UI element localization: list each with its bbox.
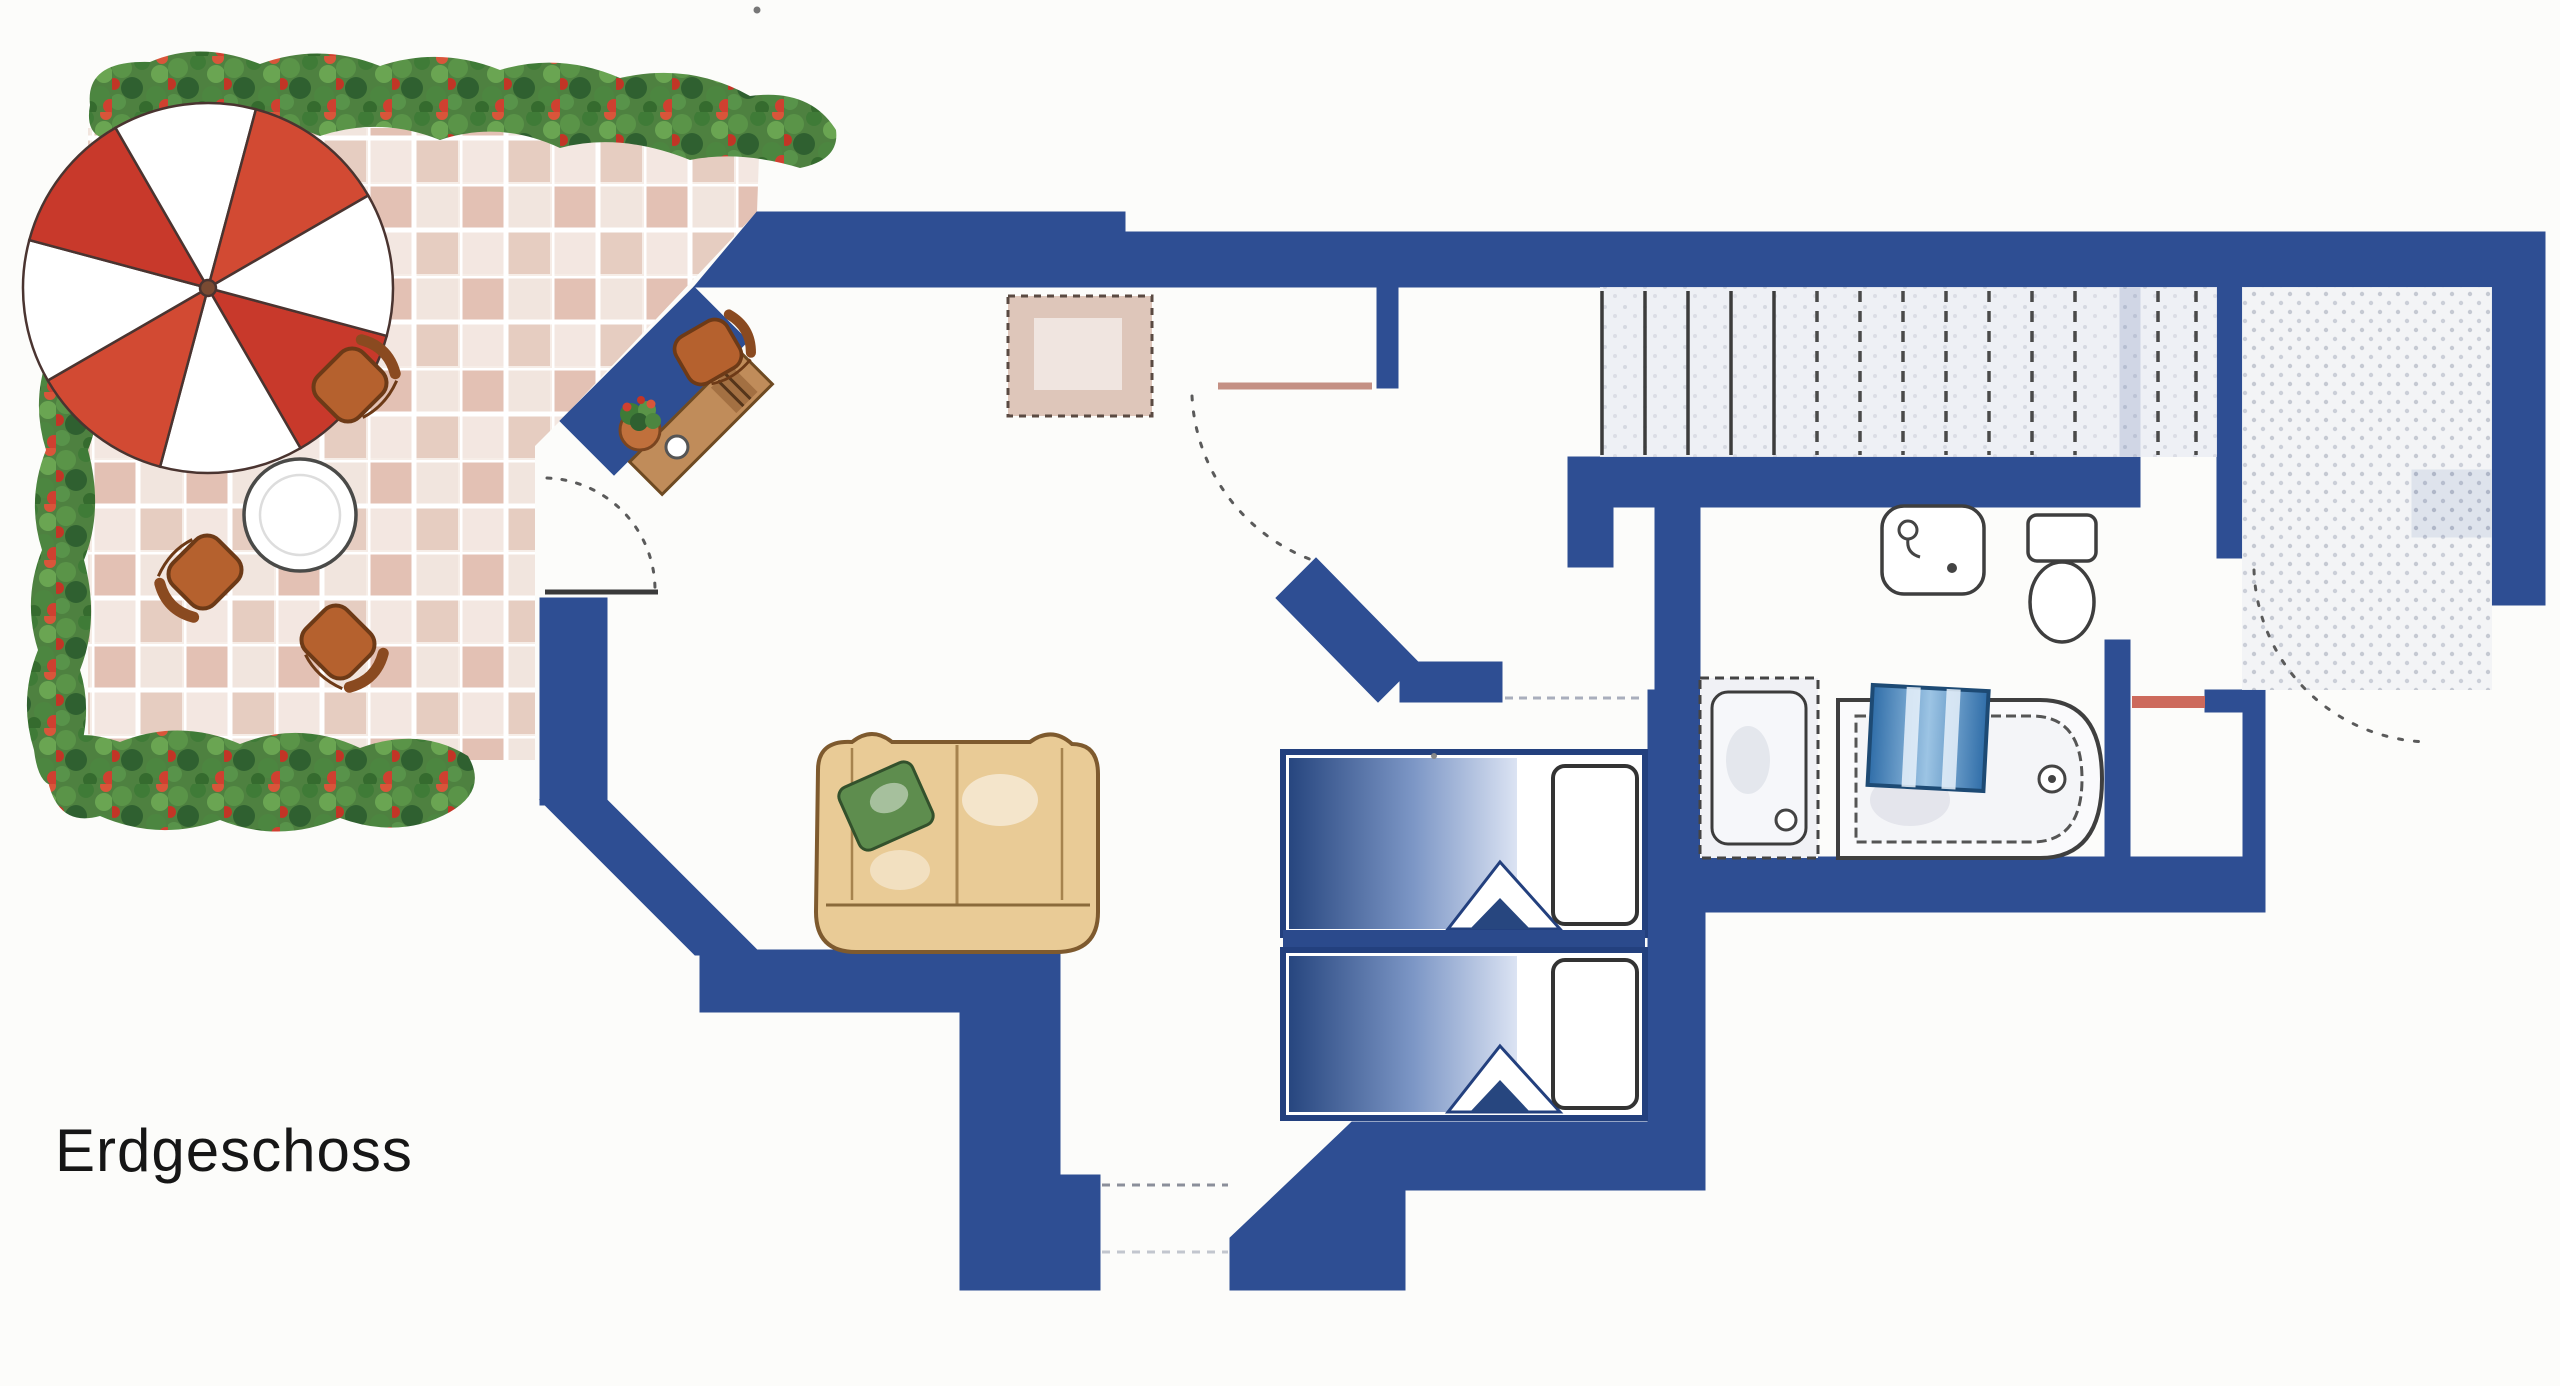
- bay-opening: [1102, 1185, 1228, 1252]
- wall-bath-bottom: [1648, 857, 2265, 912]
- floor-label: Erdgeschoss: [55, 1116, 413, 1185]
- sofa: [816, 734, 1098, 952]
- shower: [1700, 678, 1818, 858]
- flower-border-bottom: [45, 730, 475, 831]
- wall-hall-stub: [1377, 287, 1398, 388]
- wall-bedroom-right: [1648, 690, 1705, 1190]
- wall-bay-left: [960, 1012, 1100, 1290]
- wall-bedroom-diagonal: [1276, 558, 1418, 702]
- bathtub: [1838, 685, 2102, 858]
- bath-door-threshold: [2132, 696, 2205, 708]
- wall-entry-right-lower: [2243, 712, 2265, 912]
- bathroom: [1700, 506, 2102, 858]
- staircase: [1600, 287, 2217, 457]
- wall-bath-right: [2105, 640, 2130, 857]
- wall-entry-bath-a: [2205, 690, 2265, 712]
- wall-living-left: [540, 598, 607, 805]
- entry-floor: [2242, 287, 2492, 690]
- wall-living-bottom: [700, 950, 1060, 1012]
- toilet: [2028, 515, 2096, 642]
- dining-table: [1008, 296, 1152, 416]
- floorplan-page: Erdgeschoss: [0, 0, 2560, 1386]
- potted-plant: [620, 396, 661, 450]
- garden-table: [244, 459, 356, 571]
- wall-stairs-entry-divider: [2217, 287, 2242, 558]
- interior-door: [1192, 386, 1372, 560]
- bed: [1283, 950, 1645, 1118]
- wall-living-diagonal-lower: [540, 800, 762, 955]
- washbasin: [1882, 506, 1984, 594]
- towel: [1868, 685, 1989, 791]
- wall-top: [694, 212, 2545, 287]
- wall-bay-right: [1230, 1122, 1405, 1290]
- bed: [1283, 752, 1645, 935]
- wall-bedroom-top: [1400, 662, 1502, 702]
- terrace-door: [545, 478, 658, 592]
